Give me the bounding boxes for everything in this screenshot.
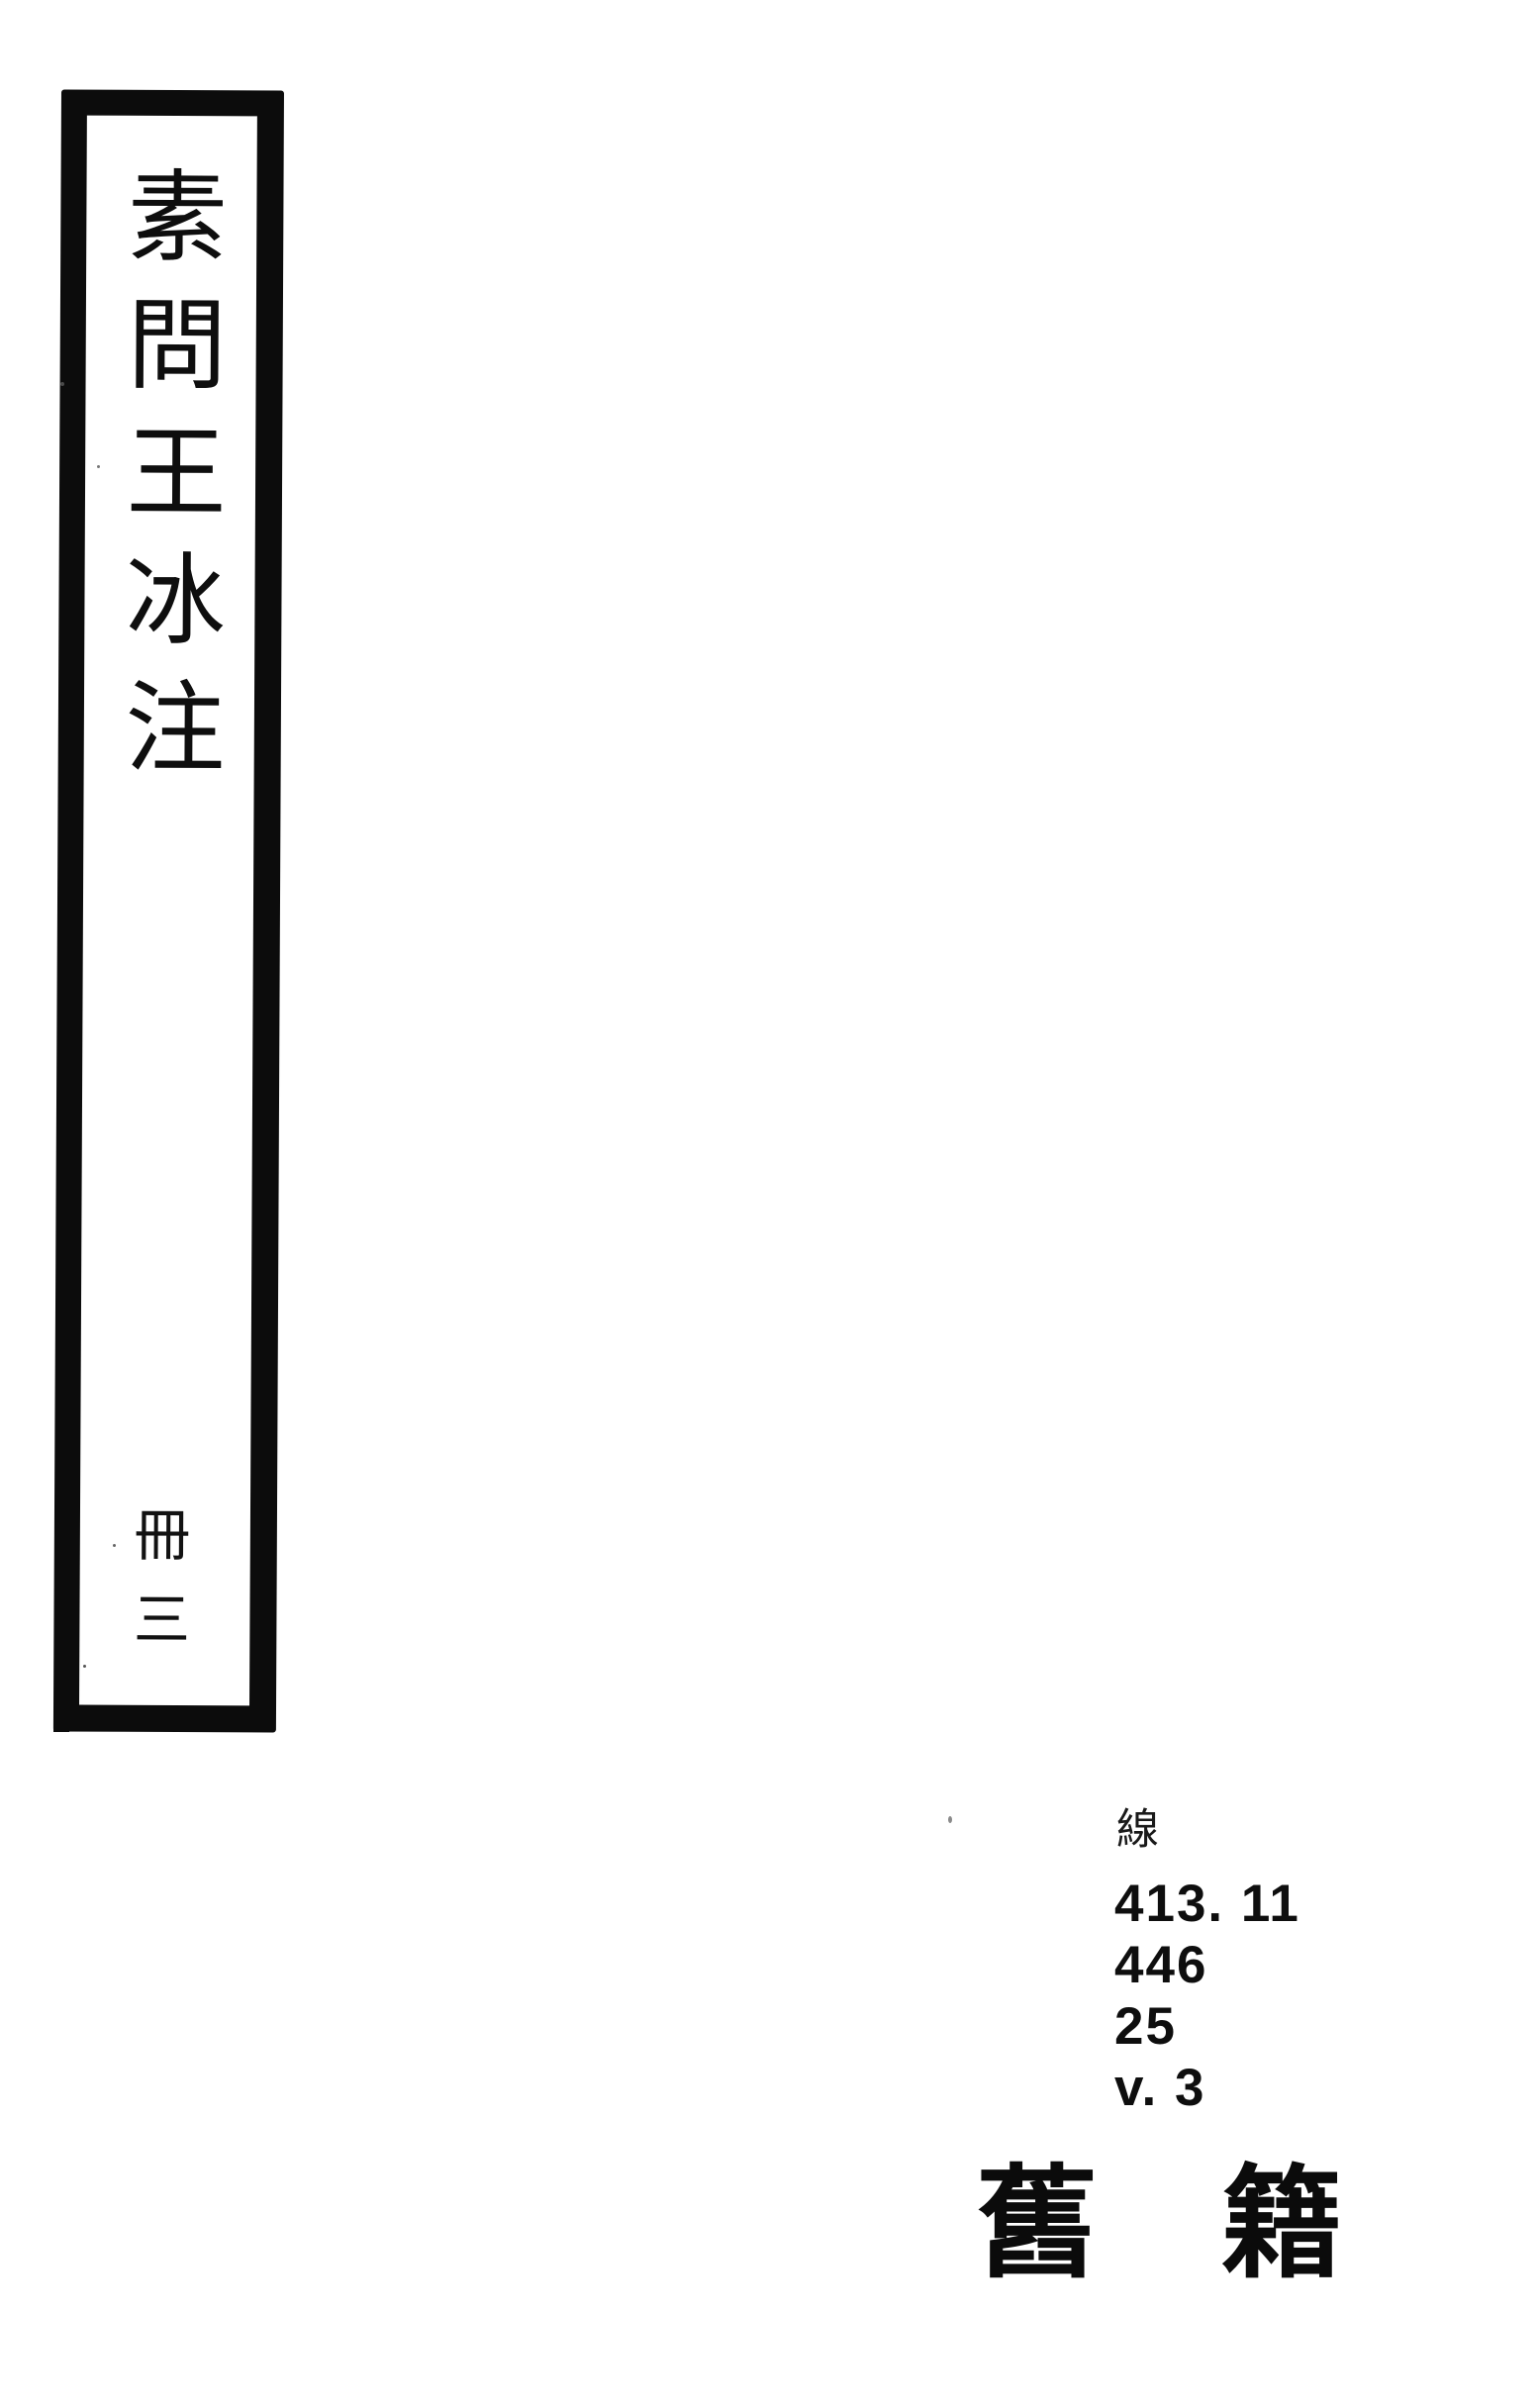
call-number-line-1: 413. 11: [1114, 1874, 1300, 1935]
spine-volume-label: 冊三: [128, 1505, 185, 1674]
scan-speck: [113, 1544, 116, 1547]
call-number-block: 線 413. 11 446 25 v. 3: [1114, 1809, 1300, 2119]
spine-title-vertical: 素問王冰注: [116, 164, 219, 803]
scan-speck: [60, 382, 64, 386]
scan-speck: [97, 465, 100, 468]
scan-ink-blot: [53, 1713, 69, 1732]
scanned-page: 素問王冰注 冊三 線 413. 11 446 25 v. 3 舊籍: [0, 0, 1538, 2408]
scan-speck: [948, 1816, 952, 1823]
scan-speck: [83, 1665, 86, 1668]
call-number-line-3: 25: [1114, 1996, 1300, 2058]
collection-stamp: 舊籍: [976, 2164, 1467, 2285]
call-number-line-4: v. 3: [1114, 2058, 1300, 2119]
call-number-line-2: 446: [1114, 1935, 1300, 1996]
book-spine-box: 素問王冰注 冊三: [53, 89, 284, 1732]
call-number-collection-prefix: 線: [1116, 1809, 1300, 1852]
